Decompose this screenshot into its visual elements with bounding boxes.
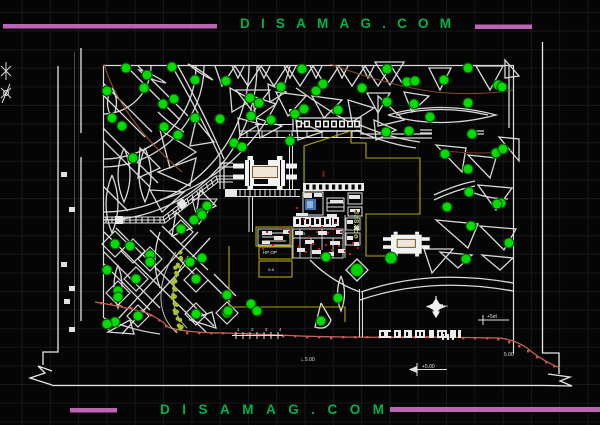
svg-text:5.00: 5.00: [504, 352, 514, 358]
svg-text:Ja8Xoo: Ja8Xoo: [352, 210, 361, 239]
svg-text:un: un: [300, 231, 306, 236]
svg-text:o.o: o.o: [268, 267, 275, 272]
svg-text:∟5.00: ∟5.00: [300, 357, 315, 363]
svg-text:DISAMAG.COM: DISAMAG.COM: [160, 402, 397, 417]
svg-text:DISAMAG.COM: DISAMAG.COM: [240, 16, 462, 31]
svg-text:+5.00: +5.00: [422, 364, 435, 370]
svg-text:HP OP: HP OP: [263, 250, 277, 255]
svg-text:+5et: +5et: [487, 314, 497, 320]
